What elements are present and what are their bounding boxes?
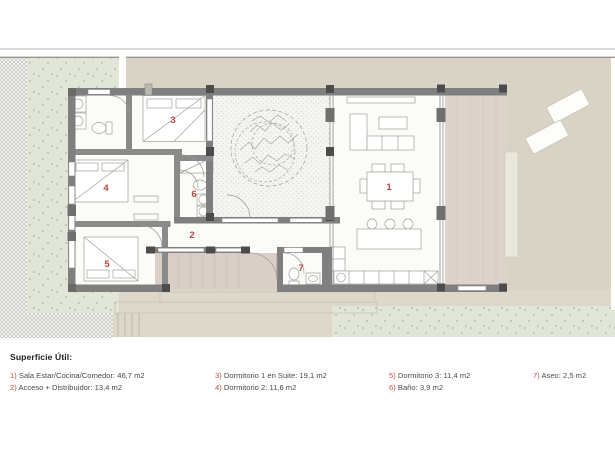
glazing-porch-2 [216, 248, 242, 252]
legend-item-6-text: Baño: 3,9 m2 [396, 383, 443, 392]
wall-room6-right [206, 155, 213, 223]
window-left-4 [69, 240, 75, 268]
wall-bath-bottom [76, 149, 133, 155]
legend-item-4-number: 4) [215, 383, 222, 392]
legend-item-5-number: 5) [389, 371, 396, 380]
legend-item-3-text: Dormitorio 1 en Suite: 19,1 m2 [222, 371, 327, 380]
wall-bath-divider [126, 95, 132, 152]
terrace-wall-gap [458, 286, 486, 291]
floor-plan-page: 1 2 3 4 5 6 7 Superficie Útil: 1) Sala E… [0, 0, 615, 454]
bed-dormitorio-2 [72, 160, 128, 202]
floor-plan-drawing: 1 2 3 4 5 6 7 [0, 0, 615, 340]
legend-item-1-text: Sala Estar/Cocina/Comedor: 46,7 m2 [17, 371, 145, 380]
terrace-bench [505, 152, 518, 257]
glazing-hall-courtyard-2 [290, 218, 322, 222]
legend-item-3-number: 3) [215, 371, 222, 380]
legend-item-1-number: 1) [10, 371, 17, 380]
coffee-table [379, 117, 407, 129]
legend-column-3: 5) Dormitorio 3: 11,4 m2 6) Baño: 3,9 m2 [389, 370, 470, 393]
legend-item-4-text: Dormitorio 2: 11,6 m2 [222, 383, 297, 392]
glazing-hall-courtyard-1 [222, 218, 278, 222]
window-bath-top [88, 90, 110, 95]
legend-item-7-text: Aseo: 2,5 m2 [540, 371, 586, 380]
room-label-3: 3 [170, 115, 175, 126]
window-room3-courtyard [207, 99, 212, 141]
window-left-3 [69, 214, 75, 230]
window-left-1 [69, 162, 75, 176]
legend-item-2-text: Acceso + Distribuidor: 13,4 m2 [17, 383, 122, 392]
terrace-deck [445, 95, 507, 285]
courtyard-gravel [213, 95, 330, 217]
legend-item-5: 5) Dormitorio 3: 11,4 m2 [389, 370, 470, 382]
tv-console [347, 97, 415, 103]
bottom-left-hatched-strip [0, 313, 113, 338]
wall-aseo-right [322, 247, 332, 287]
legend-item-6: 6) Baño: 3,9 m2 [389, 382, 470, 394]
wall-living-bottom [330, 285, 445, 293]
legend-column-2: 3) Dormitorio 1 en Suite: 19,1 m2 4) Dor… [215, 370, 327, 393]
legend-item-5-text: Dormitorio 3: 11,4 m2 [396, 371, 471, 380]
wall-living-top [330, 88, 445, 96]
legend-item-1: 1) Sala Estar/Cocina/Comedor: 46,7 m2 [10, 370, 145, 382]
room-label-4: 4 [103, 183, 109, 194]
garden-path-gap [119, 50, 126, 89]
window-left-2 [69, 186, 75, 204]
room-label-6: 6 [191, 189, 196, 200]
entry-porch-steps [155, 253, 277, 290]
room-label-2: 2 [189, 230, 194, 241]
wall-vent-box [145, 84, 152, 95]
legend-item-2-number: 2) [10, 383, 17, 392]
legend-title: Superficie Útil: [10, 352, 72, 362]
aseo-door-gap [284, 248, 303, 253]
legend-item-4: 4) Dormitorio 2: 11,6 m2 [215, 382, 327, 394]
legend-column-1: 1) Sala Estar/Cocina/Comedor: 46,7 m2 2)… [10, 370, 145, 393]
wall-terrace-top [445, 88, 507, 96]
legend-item-6-number: 6) [389, 383, 396, 392]
legend-item-7: 7) Aseo: 2,5 m2 [533, 370, 586, 382]
legend-item-7-number: 7) [533, 371, 540, 380]
wall-courtyard-top [213, 88, 330, 96]
wall-wing-bottom [68, 285, 168, 293]
legend-item-2: 2) Acceso + Distribuidor: 13,4 m2 [10, 382, 145, 394]
bed-dormitorio-3 [84, 237, 138, 281]
wall-room5-right [162, 227, 168, 287]
room-label-1: 1 [386, 182, 392, 193]
wall-room4-5-divider [76, 221, 171, 227]
bottom-right-lawn [332, 306, 615, 337]
room-label-5: 5 [104, 259, 110, 270]
legend-column-4: 7) Aseo: 2,5 m2 [533, 370, 586, 382]
courtyard [213, 95, 330, 217]
glazing-porch-1 [158, 248, 204, 252]
right-edge-strip [611, 58, 615, 310]
wall-room3-bottom [132, 149, 182, 155]
room-label-7: 7 [298, 263, 303, 274]
legend-item-3: 3) Dormitorio 1 en Suite: 19,1 m2 [215, 370, 327, 382]
wall-aseo-left [277, 253, 283, 287]
wall-room6-left [174, 155, 180, 218]
right-beige-yard [507, 58, 615, 310]
left-hatched-strip [0, 58, 27, 338]
